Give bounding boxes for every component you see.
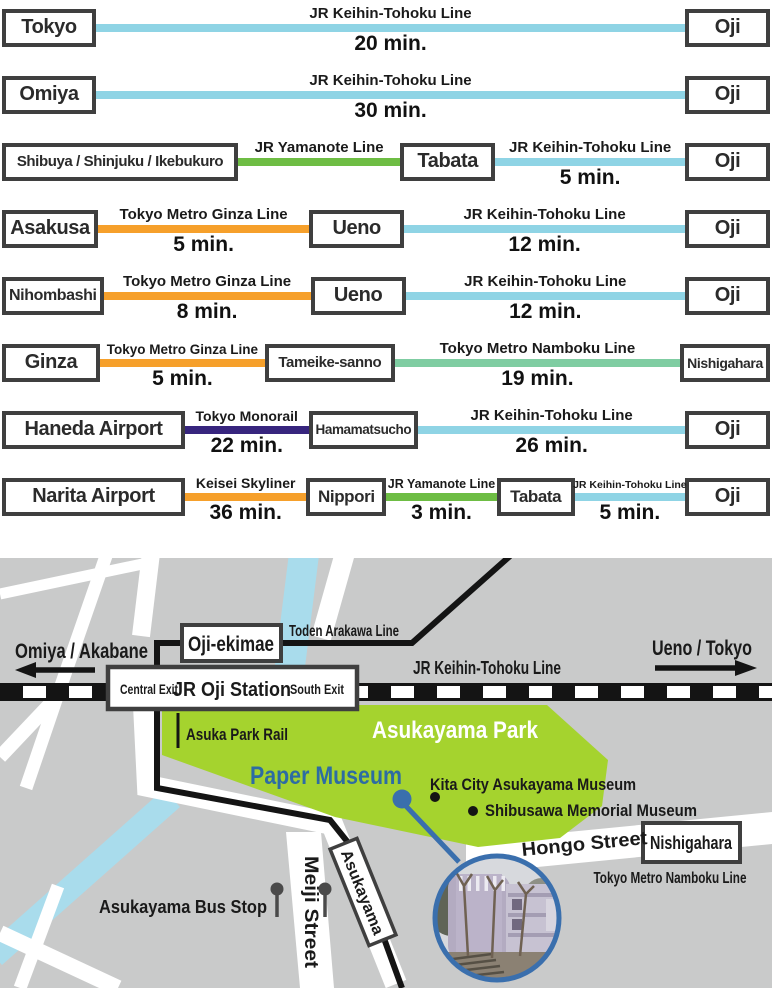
travel-time-label: 12 min. (508, 233, 580, 257)
line-bar-skyliner (185, 493, 306, 501)
line-name-label: JR Keihin-Tohoku Line (573, 479, 687, 491)
line-bar-ginza (100, 359, 265, 367)
museum-photo-detail (502, 876, 506, 891)
namboku-line-label: Tokyo Metro Namboku Line (594, 870, 747, 887)
station-box-ueno: Ueno (311, 277, 406, 315)
travel-time-label: 26 min. (515, 434, 587, 458)
route-segment-tokyo-metro-ginza-line: Tokyo Metro Ginza Line5 min. (100, 329, 265, 396)
jr-keihin-tohoku-map-label: JR Keihin-Tohoku Line (413, 658, 561, 678)
toden-arakawa-line-label: Toden Arakawa Line (289, 623, 399, 640)
route-segment-tokyo-metro-ginza-line: Tokyo Metro Ginza Line5 min. (98, 195, 309, 262)
route-segment-tokyo-monorail: Tokyo Monorail22 min. (185, 396, 309, 463)
museum-photo-detail (476, 876, 480, 891)
route-rows: TokyoJR Keihin-Tohoku Line20 min.OjiOmiy… (0, 0, 772, 530)
line-bar-keihin (406, 292, 685, 300)
station-box-oji: Oji (685, 478, 770, 516)
route-segment-jr-keihin-tohoku-line: JR Keihin-Tohoku Line20 min. (96, 0, 685, 61)
station-box-haneda-airport: Haneda Airport (2, 411, 185, 449)
station-box-ueno: Ueno (309, 210, 404, 248)
meiji-street-label: Meiji Street (300, 856, 321, 969)
kita-city-museum-label: Kita City Asukayama Museum (430, 776, 636, 794)
bus-stop-label: Asukayama Bus Stop (99, 897, 267, 917)
line-name-label: JR Keihin-Tohoku Line (309, 5, 471, 22)
line-bar-keihin (495, 158, 685, 166)
route-segment-tokyo-metro-ginza-line: Tokyo Metro Ginza Line8 min. (104, 262, 311, 329)
route-segment-jr-keihin-tohoku-line: JR Keihin-Tohoku Line12 min. (404, 195, 685, 262)
route-row: GinzaTokyo Metro Ginza Line5 min.Tameike… (0, 329, 772, 396)
line-name-label: Tokyo Metro Namboku Line (440, 340, 636, 357)
route-segment-tokyo-metro-namboku-line: Tokyo Metro Namboku Line19 min. (395, 329, 680, 396)
shibusawa-museum-dot (468, 806, 478, 816)
station-box-oji: Oji (685, 143, 770, 181)
line-bar-yamanote (386, 493, 496, 501)
travel-time-label: 22 min. (211, 434, 283, 458)
station-box-oji: Oji (685, 277, 770, 315)
travel-time-label: 36 min. (209, 501, 281, 525)
station-box-nippori: Nippori (306, 478, 386, 516)
area-map-svg: Toden Arakawa LineOmiya / AkabaneUeno / … (0, 558, 772, 988)
route-row: AsakusaTokyo Metro Ginza Line5 min.UenoJ… (0, 195, 772, 262)
paper-museum-label: Paper Museum (250, 762, 402, 790)
station-box-tabata: Tabata (497, 478, 575, 516)
line-bar-monorail (185, 426, 309, 434)
line-bar-keihin (96, 91, 685, 99)
nishigahara-map-label: Nishigahara (650, 833, 733, 853)
line-name-label: Tokyo Metro Ginza Line (107, 342, 258, 357)
travel-time-label: 30 min. (354, 99, 426, 123)
route-row: TokyoJR Keihin-Tohoku Line20 min.Oji (0, 0, 772, 61)
route-segment-jr-keihin-tohoku-line: JR Keihin-Tohoku Line5 min. (495, 128, 685, 195)
line-name-label: Tokyo Metro Ginza Line (123, 273, 291, 290)
oji-ekimae-label: Oji-ekimae (188, 633, 274, 656)
station-box-oji: Oji (685, 411, 770, 449)
line-name-label: JR Keihin-Tohoku Line (471, 407, 633, 424)
travel-time-label: 19 min. (501, 367, 573, 391)
route-segment-jr-yamanote-line: JR Yamanote Line3 min. (386, 463, 496, 530)
line-bar-keihin (575, 493, 685, 501)
travel-time-label: 8 min. (177, 300, 238, 324)
route-row: Narita AirportKeisei Skyliner36 min.Nipp… (0, 463, 772, 530)
travel-time-label: 20 min. (354, 32, 426, 56)
line-bar-ginza (104, 292, 311, 300)
route-segment-jr-keihin-tohoku-line: JR Keihin-Tohoku Line26 min. (418, 396, 685, 463)
line-name-label: Tokyo Monorail (196, 408, 298, 424)
station-box-tabata: Tabata (400, 143, 495, 181)
travel-time-label: 5 min. (173, 233, 234, 257)
access-map-page: TokyoJR Keihin-Tohoku Line20 min.OjiOmiy… (0, 0, 772, 988)
route-row: Haneda AirportTokyo Monorail22 min.Hamam… (0, 396, 772, 463)
line-name-label: JR Keihin-Tohoku Line (464, 273, 626, 290)
bus-stop-icon (271, 883, 284, 896)
route-row: NihombashiTokyo Metro Ginza Line8 min.Ue… (0, 262, 772, 329)
travel-time-label: 3 min. (411, 501, 472, 525)
museum-photo-detail (512, 899, 522, 910)
route-segment-keisei-skyliner: Keisei Skyliner36 min. (185, 463, 306, 530)
area-map: Toden Arakawa LineOmiya / AkabaneUeno / … (0, 558, 772, 988)
asukayama-park-label: Asukayama Park (372, 717, 539, 744)
line-name-label: JR Yamanote Line (388, 477, 495, 491)
station-box-nihombashi: Nihombashi (2, 277, 104, 315)
station-box-tokyo: Tokyo (2, 9, 96, 47)
station-box-omiya: Omiya (2, 76, 96, 114)
line-bar-yamanote (238, 158, 400, 166)
station-box-hamamatsucho: Hamamatsucho (309, 411, 419, 449)
route-segment-jr-keihin-tohoku-line: JR Keihin-Tohoku Line30 min. (96, 61, 685, 128)
station-box-nishigahara: Nishigahara (680, 344, 770, 382)
station-box-shibuya-shinjuku-ikebukuro: Shibuya / Shinjuku / Ikebukuro (2, 143, 238, 181)
jr-oji-station-label: JR Oji Station (173, 679, 291, 701)
line-name-label: JR Keihin-Tohoku Line (309, 72, 471, 89)
river (288, 558, 304, 682)
travel-time-label: 5 min. (152, 367, 213, 391)
line-name-label: Tokyo Metro Ginza Line (120, 206, 288, 223)
station-box-oji: Oji (685, 76, 770, 114)
south-exit-label: South Exit (290, 682, 344, 697)
station-box-tameike-sanno: Tameike-sanno (265, 344, 395, 382)
line-bar-ginza (98, 225, 309, 233)
route-segment-jr-yamanote-line: JR Yamanote Line (238, 128, 400, 195)
travel-time-label: 5 min. (600, 501, 661, 525)
station-box-asakusa: Asakusa (2, 210, 98, 248)
route-row: Shibuya / Shinjuku / IkebukuroJR Yamanot… (0, 128, 772, 195)
route-row: OmiyaJR Keihin-Tohoku Line30 min.Oji (0, 61, 772, 128)
omiya-akabane-label: Omiya / Akabane (15, 640, 148, 663)
ueno-tokyo-label: Ueno / Tokyo (652, 637, 752, 660)
travel-time-label: 12 min. (509, 300, 581, 324)
line-bar-keihin (418, 426, 685, 434)
asuka-park-rail-label: Asuka Park Rail (186, 725, 288, 744)
station-box-ginza: Ginza (2, 344, 100, 382)
station-box-oji: Oji (685, 210, 770, 248)
kita-city-museum-dot (430, 792, 440, 802)
line-name-label: JR Keihin-Tohoku Line (509, 139, 671, 156)
museum-photo-detail (512, 919, 522, 930)
line-bar-namboku (395, 359, 680, 367)
route-segment-jr-keihin-tohoku-line: JR Keihin-Tohoku Line12 min. (406, 262, 685, 329)
route-segment-jr-keihin-tohoku-line: JR Keihin-Tohoku Line5 min. (575, 463, 685, 530)
station-box-oji: Oji (685, 9, 770, 47)
road (141, 558, 151, 636)
line-bar-keihin (404, 225, 685, 233)
station-box-narita-airport: Narita Airport (2, 478, 185, 516)
shibusawa-museum-label: Shibusawa Memorial Museum (485, 802, 697, 820)
travel-time-label: 5 min. (560, 166, 621, 190)
museum-photo-detail (508, 933, 560, 937)
bus-stop-icon (319, 883, 332, 896)
central-exit-label: Central Exit (120, 682, 178, 697)
line-bar-keihin (96, 24, 685, 32)
line-name-label: JR Keihin-Tohoku Line (463, 206, 625, 223)
line-name-label: Keisei Skyliner (196, 475, 296, 491)
line-name-label: JR Yamanote Line (255, 139, 384, 156)
